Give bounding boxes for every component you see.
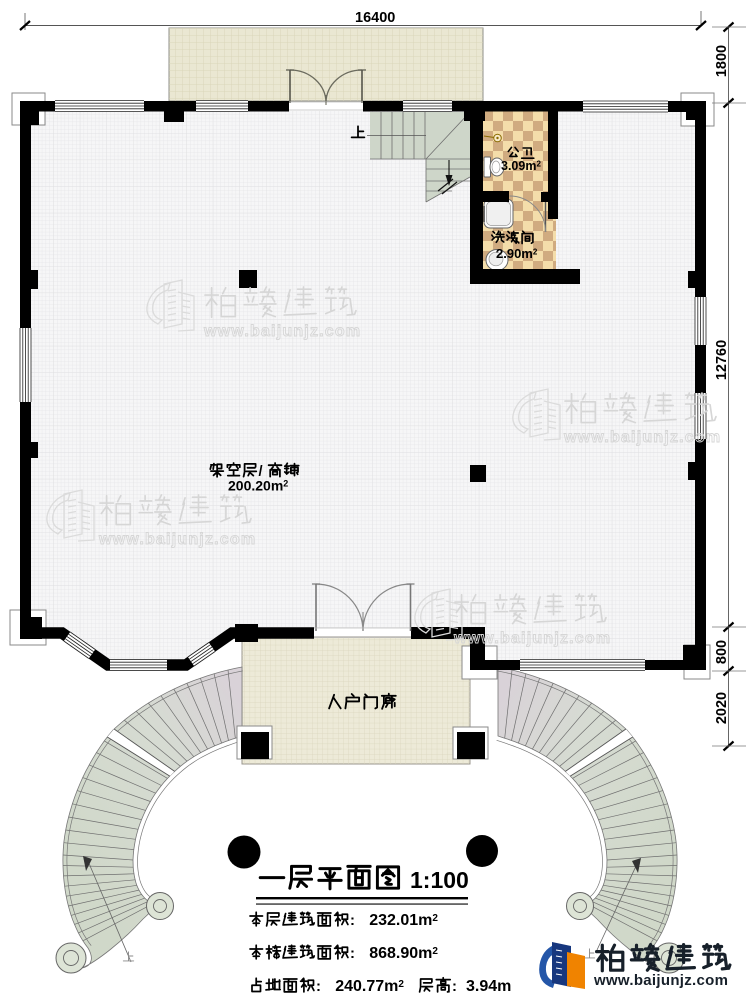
svg-text:www.baijunjz.com: www.baijunjz.com (98, 531, 256, 548)
svg-text:www.baijunjz.com: www.baijunjz.com (453, 630, 611, 647)
svg-text:12760: 12760 (714, 340, 730, 380)
svg-text:200.20m2: 200.20m2 (228, 478, 288, 494)
svg-text:2.90m2: 2.90m2 (496, 246, 538, 261)
svg-text:868.90m2: 868.90m2 (369, 945, 438, 962)
svg-text:16400: 16400 (355, 10, 395, 26)
svg-text:www.baijunjz.com: www.baijunjz.com (593, 972, 728, 989)
svg-text:3.09m2: 3.09m2 (501, 159, 541, 173)
svg-text:800: 800 (714, 640, 730, 664)
svg-text:2020: 2020 (714, 692, 730, 724)
svg-text:240.77m2: 240.77m2 (335, 978, 404, 995)
svg-text:232.01m2: 232.01m2 (369, 912, 438, 929)
svg-text::: : (452, 979, 457, 995)
svg-text:1:100: 1:100 (410, 867, 469, 893)
svg-text:1800: 1800 (714, 45, 730, 77)
svg-text::: : (350, 913, 355, 929)
svg-text::: : (350, 946, 355, 962)
svg-text::: : (316, 979, 321, 995)
svg-text:www.baijunjz.com: www.baijunjz.com (203, 323, 361, 340)
svg-text:www.baijunjz.com: www.baijunjz.com (563, 429, 721, 446)
svg-text:3.94m: 3.94m (466, 978, 511, 995)
